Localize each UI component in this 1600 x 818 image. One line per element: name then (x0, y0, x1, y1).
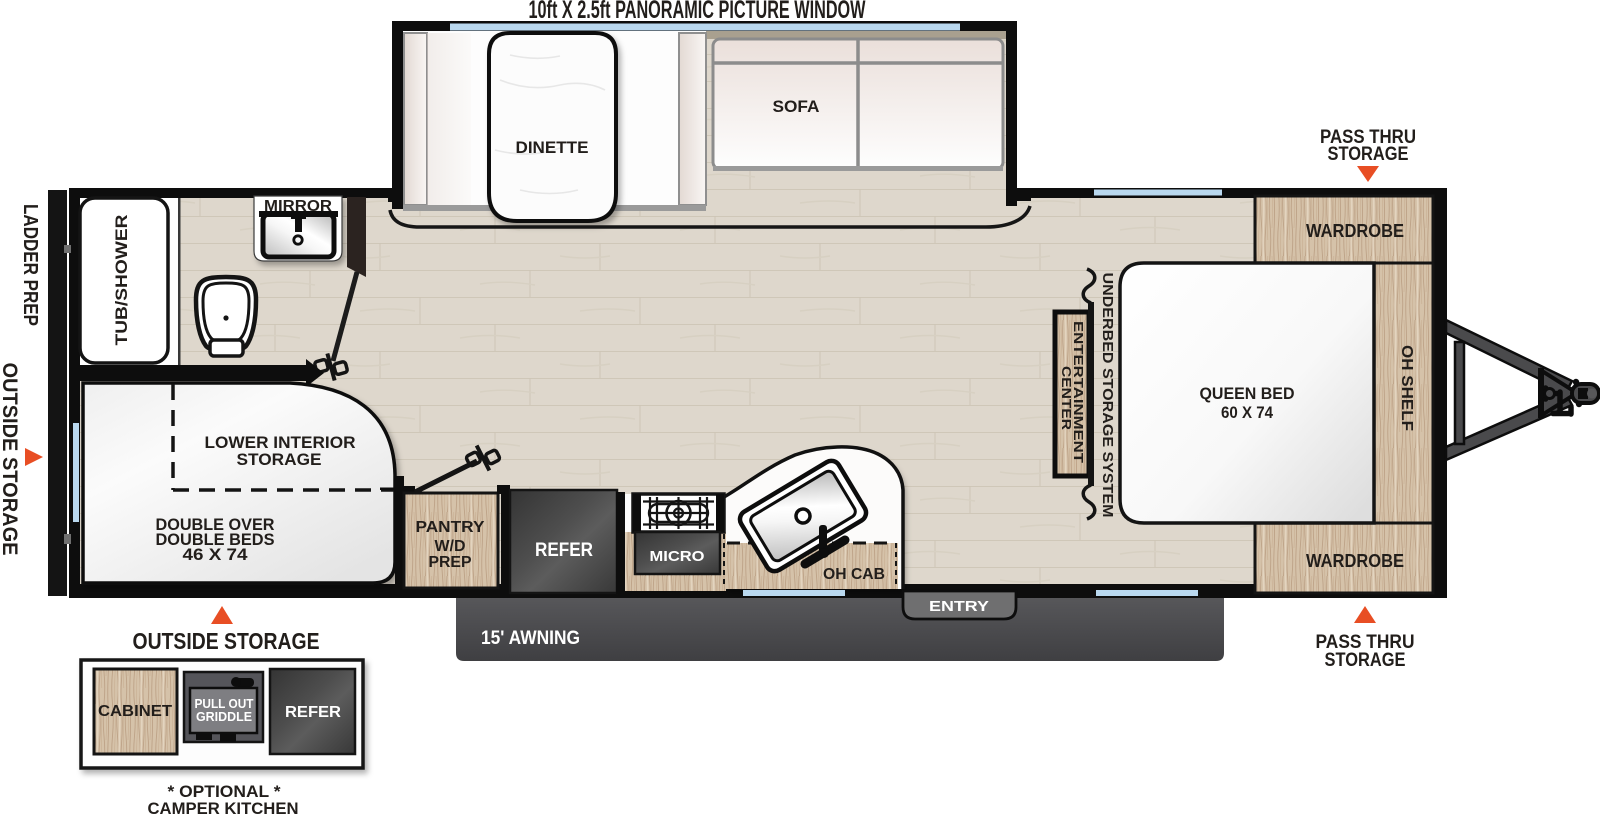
svg-text:LADDER PREP: LADDER PREP (19, 204, 41, 326)
svg-text:OUTSIDE STORAGE: OUTSIDE STORAGE (133, 628, 320, 654)
svg-text:WARDROBE: WARDROBE (1306, 551, 1404, 571)
svg-text:PANTRY: PANTRY (416, 519, 485, 536)
svg-text:ENTRY: ENTRY (929, 598, 989, 615)
svg-text:UNDERBED STORAGE SYSTEM: UNDERBED STORAGE SYSTEM (1099, 273, 1116, 518)
svg-text:DINETTE: DINETTE (516, 138, 589, 157)
svg-text:60 X 74: 60 X 74 (1221, 403, 1273, 422)
svg-text:W/D: W/D (435, 538, 466, 555)
svg-text:LOWER INTERIOR: LOWER INTERIOR (205, 434, 356, 452)
svg-text:46 X 74: 46 X 74 (183, 545, 249, 564)
svg-text:CABINET: CABINET (98, 703, 172, 720)
svg-text:STORAGE: STORAGE (1325, 650, 1406, 671)
svg-text:TUB/SHOWER: TUB/SHOWER (112, 215, 131, 346)
svg-text:STORAGE: STORAGE (1328, 144, 1409, 165)
svg-text:REFER: REFER (285, 704, 341, 721)
svg-text:WARDROBE: WARDROBE (1306, 221, 1404, 241)
svg-text:QUEEN BED: QUEEN BED (1200, 384, 1295, 403)
svg-text:CAMPER KITCHEN: CAMPER KITCHEN (148, 799, 299, 818)
svg-text:STORAGE: STORAGE (237, 451, 322, 469)
svg-text:GRIDDLE: GRIDDLE (196, 709, 252, 724)
svg-text:10ft X 2.5ft PANORAMIC PICTURE: 10ft X 2.5ft PANORAMIC PICTURE WINDOW (529, 0, 866, 24)
svg-text:15' AWNING: 15' AWNING (481, 628, 580, 649)
svg-text:PREP: PREP (429, 554, 472, 571)
svg-text:REFER: REFER (535, 540, 593, 561)
svg-text:OH CAB: OH CAB (823, 566, 885, 583)
svg-text:CENTER: CENTER (1059, 366, 1073, 430)
svg-text:SOFA: SOFA (773, 97, 820, 116)
svg-text:OH SHELF: OH SHELF (1398, 345, 1415, 431)
svg-text:OUTSIDE STORAGE: OUTSIDE STORAGE (0, 363, 21, 556)
svg-text:MICRO: MICRO (650, 548, 705, 565)
